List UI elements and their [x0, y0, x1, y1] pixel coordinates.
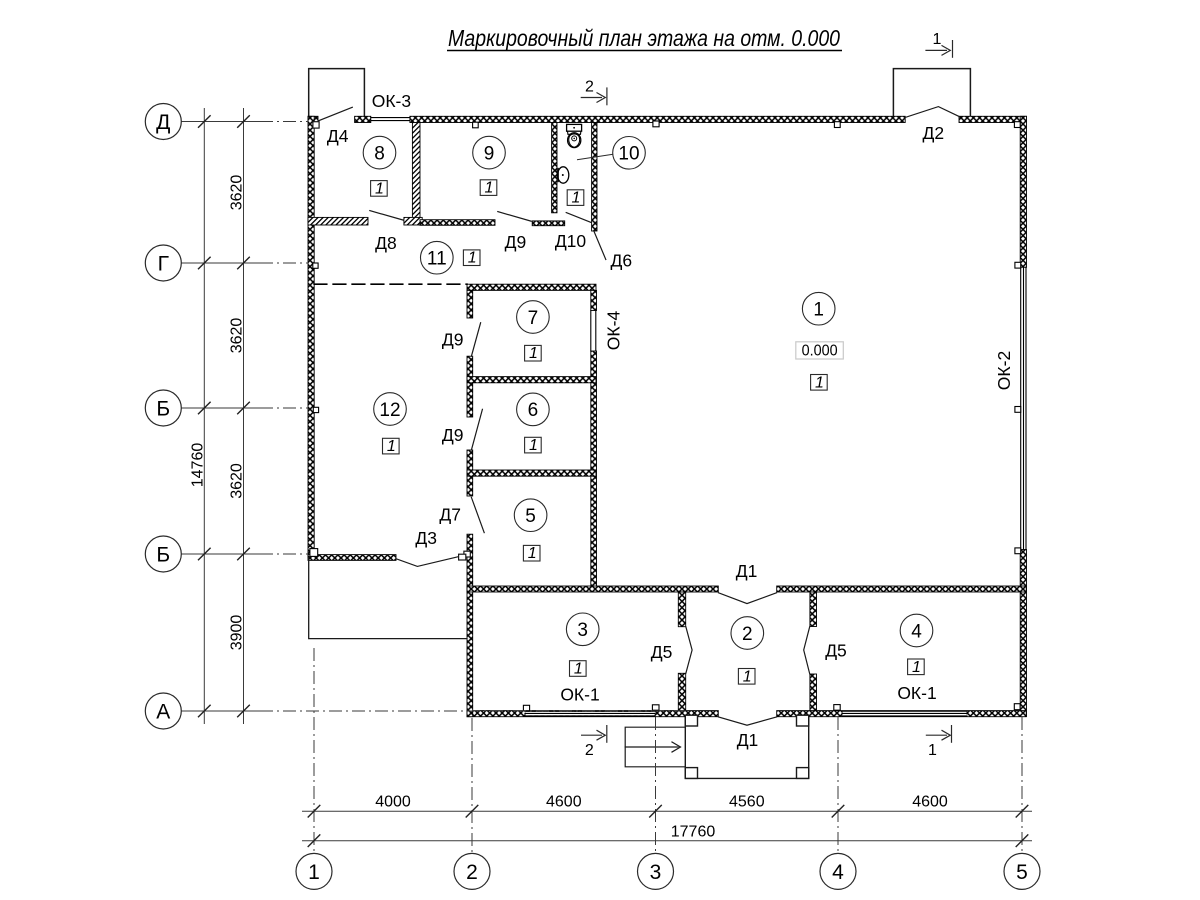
svg-text:А: А — [156, 701, 170, 724]
svg-text:Д8: Д8 — [375, 233, 397, 253]
svg-text:4: 4 — [911, 621, 922, 642]
svg-text:Д1: Д1 — [736, 561, 758, 581]
svg-text:14760: 14760 — [190, 443, 207, 488]
svg-text:3: 3 — [577, 620, 588, 641]
svg-text:Д4: Д4 — [327, 126, 349, 146]
svg-text:ОК-3: ОК-3 — [372, 91, 411, 111]
svg-text:ОК-1: ОК-1 — [897, 683, 936, 703]
svg-text:6: 6 — [528, 400, 539, 421]
svg-text:1: 1 — [529, 437, 538, 454]
svg-text:Д: Д — [156, 111, 170, 134]
svg-text:1: 1 — [485, 180, 494, 197]
svg-text:Г: Г — [158, 253, 169, 276]
svg-text:2: 2 — [466, 861, 478, 884]
svg-text:4600: 4600 — [546, 794, 582, 811]
svg-text:1: 1 — [468, 250, 477, 267]
svg-text:1: 1 — [815, 374, 824, 391]
svg-text:1: 1 — [813, 300, 824, 321]
svg-text:Маркировочный план этажа на от: Маркировочный план этажа на отм. 0.000 — [448, 25, 840, 51]
svg-text:1: 1 — [572, 190, 581, 207]
svg-text:2: 2 — [585, 742, 594, 759]
svg-text:1: 1 — [932, 31, 941, 48]
svg-text:4000: 4000 — [375, 794, 411, 811]
svg-text:1: 1 — [912, 659, 921, 676]
svg-text:10: 10 — [618, 144, 639, 165]
svg-text:1: 1 — [308, 861, 320, 884]
svg-text:Д7: Д7 — [439, 505, 461, 525]
svg-text:1: 1 — [743, 668, 752, 685]
svg-text:4560: 4560 — [729, 794, 765, 811]
svg-text:8: 8 — [374, 143, 385, 164]
svg-text:1: 1 — [528, 545, 537, 562]
svg-text:Д2: Д2 — [923, 123, 945, 143]
svg-text:12: 12 — [379, 400, 400, 421]
svg-text:Б: Б — [156, 544, 170, 567]
svg-text:1: 1 — [375, 180, 384, 197]
svg-text:5: 5 — [1016, 861, 1028, 884]
svg-text:Д9: Д9 — [505, 232, 527, 252]
svg-text:ОК-2: ОК-2 — [994, 351, 1014, 390]
svg-text:3900: 3900 — [229, 615, 246, 651]
svg-text:Д9: Д9 — [442, 425, 464, 445]
svg-text:7: 7 — [528, 308, 539, 329]
svg-text:1: 1 — [574, 661, 583, 678]
svg-text:Д10: Д10 — [555, 231, 587, 251]
svg-text:2: 2 — [585, 78, 594, 95]
svg-text:Д9: Д9 — [442, 329, 464, 349]
svg-text:2: 2 — [742, 624, 753, 645]
svg-text:Б: Б — [156, 398, 170, 421]
svg-text:Д5: Д5 — [825, 641, 847, 661]
svg-text:3: 3 — [650, 861, 662, 884]
svg-text:1: 1 — [387, 438, 396, 455]
svg-text:0.000: 0.000 — [802, 343, 838, 360]
svg-text:17760: 17760 — [671, 823, 716, 840]
svg-text:ОК-1: ОК-1 — [560, 684, 599, 704]
svg-text:1: 1 — [529, 345, 538, 362]
svg-text:Д5: Д5 — [651, 642, 673, 662]
svg-text:Д3: Д3 — [415, 528, 437, 548]
svg-text:Д1: Д1 — [737, 730, 759, 750]
svg-text:11: 11 — [427, 249, 447, 270]
svg-text:3620: 3620 — [229, 463, 246, 499]
svg-text:3620: 3620 — [229, 175, 246, 211]
svg-text:5: 5 — [525, 506, 536, 527]
svg-text:1: 1 — [928, 742, 937, 759]
svg-text:4: 4 — [832, 861, 844, 884]
svg-text:ОК-4: ОК-4 — [604, 311, 624, 351]
svg-text:4600: 4600 — [912, 794, 948, 811]
svg-text:3620: 3620 — [229, 318, 246, 354]
svg-text:9: 9 — [484, 143, 495, 164]
svg-text:Д6: Д6 — [611, 251, 633, 271]
